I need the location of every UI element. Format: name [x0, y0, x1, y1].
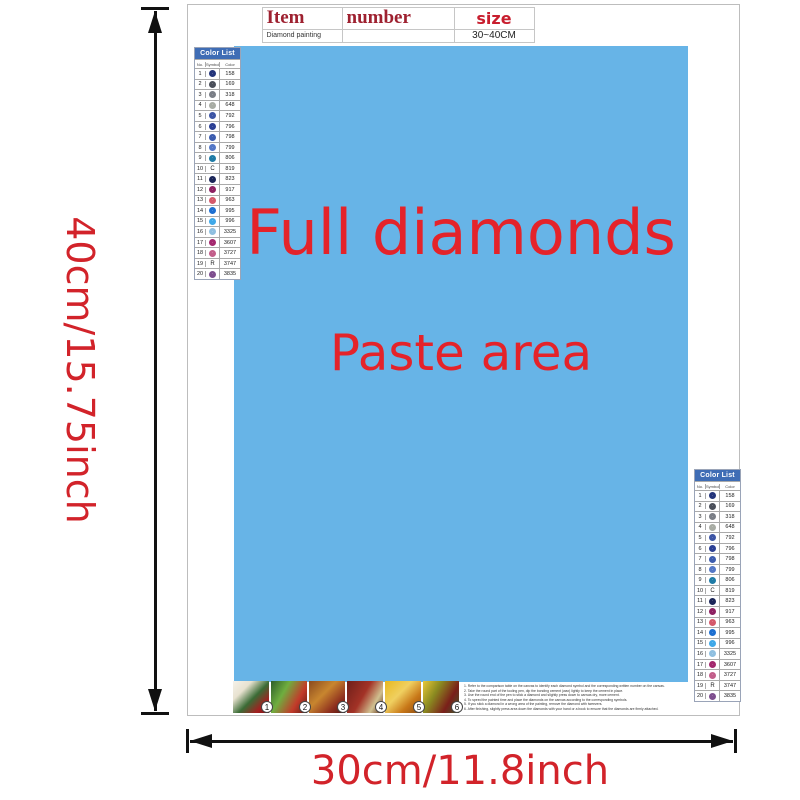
color-symbol-circle-icon: ·	[709, 534, 716, 541]
color-row-code: 796	[720, 546, 740, 552]
color-row: 4·648	[695, 522, 740, 533]
color-row-code: 169	[220, 81, 240, 87]
color-symbol-letter: C	[710, 588, 714, 594]
color-row: 2·169	[195, 79, 240, 90]
color-symbol-circle-icon: ·	[709, 640, 716, 647]
color-row-symbol: ·	[206, 206, 220, 216]
color-row: 13·963	[195, 195, 240, 206]
color-row-symbol: C	[206, 164, 220, 174]
color-row-code: 823	[220, 176, 240, 182]
col-symbol-label: Symbol	[706, 484, 720, 489]
step-photo-tile: 1	[233, 681, 269, 713]
color-row-symbol: ·	[706, 533, 720, 543]
step-photo-tile: 5	[385, 681, 421, 713]
color-symbol-circle-icon: ·	[209, 123, 216, 130]
color-row-number: 8	[195, 145, 206, 151]
color-row-symbol: ·	[706, 565, 720, 575]
color-row-symbol: ·	[206, 196, 220, 206]
color-row-number: 6	[695, 546, 706, 552]
color-row-number: 11	[195, 176, 206, 182]
color-symbol-circle-icon: ·	[209, 207, 216, 214]
color-row-number: 7	[695, 556, 706, 562]
color-list-column-headers: No. Symbol Color	[195, 59, 240, 68]
color-symbol-circle-icon: ·	[709, 650, 716, 657]
color-row: 16·3325	[195, 226, 240, 237]
instruction-text-block: 1. Refer to the comparison table on the …	[464, 684, 722, 712]
arrow-right-head-icon	[711, 734, 733, 748]
color-row-number: 2	[695, 503, 706, 509]
step-number-badge: 4	[375, 701, 387, 713]
color-symbol-circle-icon: ·	[209, 186, 216, 193]
color-row-code: 823	[720, 598, 740, 604]
color-row-number: 13	[195, 197, 206, 203]
color-row-symbol: ·	[706, 670, 720, 680]
color-row-symbol: ·	[706, 639, 720, 649]
color-symbol-circle-icon: ·	[709, 513, 716, 520]
color-row-code: 3325	[220, 229, 240, 235]
color-row-code: 648	[720, 524, 740, 530]
color-row-symbol: R	[206, 259, 220, 269]
color-symbol-circle-icon: ·	[209, 70, 216, 77]
color-row: 14·995	[695, 627, 740, 638]
color-row-symbol: ·	[706, 523, 720, 533]
color-row-code: 3607	[220, 240, 240, 246]
color-row-code: 806	[720, 577, 740, 583]
color-row-symbol: ·	[706, 618, 720, 628]
instruction-steps-strip: 123456	[233, 681, 461, 715]
color-row: 9·806	[695, 574, 740, 585]
number-header-cell: number	[342, 7, 455, 30]
color-row: 7·798	[695, 553, 740, 564]
color-row: 10C819	[195, 163, 240, 174]
color-row: 15·996	[695, 638, 740, 649]
color-list-column-headers: No. Symbol Color	[695, 481, 740, 490]
color-symbol-circle-icon: ·	[209, 271, 216, 278]
color-row-symbol: ·	[206, 69, 220, 79]
color-row-symbol: ·	[206, 153, 220, 163]
col-color-label: Color	[720, 484, 740, 489]
color-row: 15·996	[195, 216, 240, 227]
col-symbol-label: Symbol	[206, 62, 220, 67]
color-symbol-circle-icon: ·	[709, 629, 716, 636]
color-symbol-circle-icon: ·	[709, 556, 716, 563]
color-row: 17·3607	[695, 659, 740, 670]
color-symbol-letter: C	[210, 166, 214, 172]
color-row-number: 20	[195, 271, 206, 277]
color-row-number: 16	[195, 229, 206, 235]
color-symbol-circle-icon: ·	[709, 598, 716, 605]
color-row-code: 3727	[720, 672, 740, 678]
color-row-number: 18	[695, 672, 706, 678]
color-symbol-circle-icon: ·	[709, 545, 716, 552]
color-row: 2·169	[695, 501, 740, 512]
color-row-code: 796	[220, 124, 240, 130]
step-number-badge: 2	[299, 701, 311, 713]
color-row-symbol: ·	[206, 269, 220, 279]
color-list-right: Color List No. Symbol Color 1·1582·1693·…	[694, 469, 741, 702]
color-row-symbol: ·	[206, 80, 220, 90]
color-row: 20·3835	[195, 268, 240, 279]
color-row: 13·963	[695, 617, 740, 628]
color-row-number: 1	[695, 493, 706, 499]
color-row: 7·798	[195, 131, 240, 142]
instruction-line: 6. After finishing, slightly press area …	[464, 707, 722, 712]
color-symbol-circle-icon: ·	[209, 176, 216, 183]
color-symbol-circle-icon: ·	[709, 503, 716, 510]
color-row-code: 799	[720, 567, 740, 573]
color-row-number: 5	[695, 535, 706, 541]
color-symbol-circle-icon: ·	[709, 566, 716, 573]
step-number-badge: 5	[413, 701, 425, 713]
color-symbol-circle-icon: ·	[709, 661, 716, 668]
color-row-symbol: ·	[706, 628, 720, 638]
step-number-badge: 3	[337, 701, 349, 713]
color-row: 6·796	[695, 543, 740, 554]
color-row-number: 10	[195, 166, 206, 172]
color-row-number: 3	[695, 514, 706, 520]
color-row: 1·158	[695, 490, 740, 501]
canvas-sheet: Item number size Diamond painting 30~40C…	[187, 4, 740, 716]
color-row: 17·3607	[195, 237, 240, 248]
color-row-code: 996	[720, 640, 740, 646]
color-row: 12·917	[695, 606, 740, 617]
paste-area: Full diamonds Paste area	[234, 46, 688, 682]
color-row-symbol: ·	[706, 660, 720, 670]
arrow-vertical-line	[154, 11, 157, 711]
color-row-code: 798	[220, 134, 240, 140]
color-row: 3·318	[195, 89, 240, 100]
step-photo-tile: 6	[423, 681, 459, 713]
paste-area-title: Full diamonds	[246, 196, 676, 269]
color-row-code: 648	[220, 102, 240, 108]
item-header-cell: Item	[262, 7, 343, 30]
color-row-code: 3325	[720, 651, 740, 657]
color-row-symbol: ·	[706, 512, 720, 522]
color-row-number: 7	[195, 134, 206, 140]
color-row-symbol: ·	[206, 143, 220, 153]
size-value-cell: 30~40CM	[454, 29, 535, 43]
color-row: 8·799	[695, 564, 740, 575]
color-row-symbol: ·	[706, 554, 720, 564]
color-row-number: 6	[195, 124, 206, 130]
color-row-code: 917	[220, 187, 240, 193]
step-photo-tile: 3	[309, 681, 345, 713]
product-name-cell: Diamond painting	[262, 29, 343, 43]
color-row-code: 819	[720, 588, 740, 594]
color-row: 14·995	[195, 205, 240, 216]
color-row-code: 792	[220, 113, 240, 119]
color-row-code: 799	[220, 145, 240, 151]
color-symbol-circle-icon: ·	[209, 91, 216, 98]
color-list-left: Color List No. Symbol Color 1·1582·1693·…	[194, 47, 241, 280]
color-row-code: 158	[220, 71, 240, 77]
color-row-number: 18	[195, 250, 206, 256]
color-symbol-circle-icon: ·	[709, 577, 716, 584]
col-no-label: No.	[195, 62, 206, 67]
color-row-code: 963	[220, 197, 240, 203]
color-symbol-circle-icon: ·	[209, 250, 216, 257]
height-dimension-arrow	[141, 7, 169, 715]
color-row: 18·3727	[195, 247, 240, 258]
color-row-code: 3747	[720, 683, 740, 689]
color-row-symbol: ·	[206, 174, 220, 184]
color-row-code: 318	[220, 92, 240, 98]
color-row-number: 15	[195, 218, 206, 224]
col-no-label: No.	[695, 484, 706, 489]
color-row-symbol: ·	[706, 502, 720, 512]
color-row: 4·648	[195, 100, 240, 111]
color-symbol-circle-icon: ·	[709, 619, 716, 626]
color-row: 12·917	[195, 184, 240, 195]
color-row-number: 12	[195, 187, 206, 193]
color-row: 6·796	[195, 121, 240, 132]
color-row-code: 3835	[720, 693, 740, 699]
color-symbol-circle-icon: ·	[209, 102, 216, 109]
color-row-number: 15	[695, 640, 706, 646]
arrow-down-head-icon	[148, 689, 162, 711]
color-symbol-circle-icon: ·	[209, 197, 216, 204]
step-number-badge: 1	[261, 701, 273, 713]
color-row: 5·792	[695, 532, 740, 543]
color-row: 11·823	[695, 595, 740, 606]
color-symbol-circle-icon: ·	[209, 144, 216, 151]
color-row-number: 5	[195, 113, 206, 119]
color-list-title: Color List	[195, 48, 240, 59]
color-row-symbol: ·	[706, 649, 720, 659]
color-row: 16·3325	[695, 648, 740, 659]
item-size-table: Item number size Diamond painting 30~40C…	[262, 7, 504, 42]
color-list-rows: 1·1582·1693·3184·6485·7926·7967·7988·799…	[195, 68, 240, 279]
color-row: 11·823	[195, 173, 240, 184]
color-row-code: 963	[720, 619, 740, 625]
color-symbol-letter: R	[210, 261, 214, 267]
color-row-code: 3747	[220, 261, 240, 267]
color-row-code: 158	[720, 493, 740, 499]
color-row: 18·3727	[695, 669, 740, 680]
color-row-code: 806	[220, 155, 240, 161]
color-row-symbol: ·	[206, 217, 220, 227]
color-row-symbol: ·	[206, 111, 220, 121]
color-symbol-circle-icon: ·	[709, 524, 716, 531]
color-row: 8·799	[195, 142, 240, 153]
step-number-badge: 6	[451, 701, 463, 713]
color-symbol-circle-icon: ·	[209, 155, 216, 162]
paste-area-subtitle: Paste area	[330, 324, 592, 382]
color-row-number: 12	[695, 609, 706, 615]
arrow-horizontal-line	[190, 740, 733, 743]
color-row-code: 995	[220, 208, 240, 214]
color-row-symbol: ·	[706, 596, 720, 606]
color-row-number: 4	[695, 524, 706, 530]
color-row-symbol: ·	[706, 575, 720, 585]
color-row-symbol: ·	[206, 132, 220, 142]
arrow-bottom-cap	[141, 712, 169, 715]
color-row-number: 11	[695, 598, 706, 604]
color-row-number: 17	[195, 240, 206, 246]
color-row-symbol: ·	[706, 491, 720, 501]
arrow-top-cap	[141, 7, 169, 10]
color-row-code: 798	[720, 556, 740, 562]
color-row-number: 1	[195, 71, 206, 77]
color-row-symbol: ·	[206, 185, 220, 195]
color-symbol-circle-icon: ·	[209, 218, 216, 225]
color-row-symbol: ·	[206, 227, 220, 237]
color-row-symbol: ·	[706, 607, 720, 617]
color-row: 19R3747	[195, 258, 240, 269]
color-row-number: 3	[195, 92, 206, 98]
color-list-title: Color List	[695, 470, 740, 481]
arrow-left-cap	[186, 729, 189, 753]
color-row-code: 792	[720, 535, 740, 541]
color-row-code: 318	[720, 514, 740, 520]
color-row-code: 3607	[720, 662, 740, 668]
color-symbol-circle-icon: ·	[209, 134, 216, 141]
color-row-number: 19	[195, 261, 206, 267]
step-photo-tile: 2	[271, 681, 307, 713]
color-row-code: 995	[720, 630, 740, 636]
color-row: 10C819	[695, 585, 740, 596]
color-row-symbol: ·	[206, 238, 220, 248]
color-row-code: 819	[220, 166, 240, 172]
color-row-symbol: ·	[206, 122, 220, 132]
color-row-symbol: ·	[206, 90, 220, 100]
size-header-cell: size	[454, 7, 535, 30]
color-row: 3·318	[695, 511, 740, 522]
color-row-code: 3835	[220, 271, 240, 277]
arrow-right-cap	[734, 729, 737, 753]
color-row-number: 14	[695, 630, 706, 636]
color-symbol-circle-icon: ·	[209, 239, 216, 246]
color-row-symbol: ·	[706, 544, 720, 554]
color-row-number: 17	[695, 662, 706, 668]
color-row: 1·158	[195, 68, 240, 79]
color-row-symbol: ·	[206, 248, 220, 258]
color-row-code: 3727	[220, 250, 240, 256]
color-symbol-circle-icon: ·	[709, 492, 716, 499]
color-row: 9·806	[195, 152, 240, 163]
number-value-cell	[342, 29, 455, 43]
color-symbol-circle-icon: ·	[709, 608, 716, 615]
color-row-number: 13	[695, 619, 706, 625]
color-symbol-circle-icon: ·	[709, 672, 716, 679]
color-row-number: 8	[695, 567, 706, 573]
color-row-symbol: C	[706, 586, 720, 596]
color-row-code: 169	[720, 503, 740, 509]
color-row-number: 9	[195, 155, 206, 161]
color-symbol-circle-icon: ·	[209, 112, 216, 119]
height-dimension-label: 40cm/15.75inch	[58, 202, 102, 538]
color-row-number: 2	[195, 81, 206, 87]
color-row-number: 10	[695, 588, 706, 594]
color-row: 5·792	[195, 110, 240, 121]
col-color-label: Color	[220, 62, 240, 67]
color-list-rows: 1·1582·1693·3184·6485·7926·7967·7988·799…	[695, 490, 740, 701]
width-dimension-label: 30cm/11.8inch	[260, 748, 660, 794]
color-row-number: 14	[195, 208, 206, 214]
color-row-number: 9	[695, 577, 706, 583]
color-row-number: 4	[195, 102, 206, 108]
color-symbol-circle-icon: ·	[209, 228, 216, 235]
step-photo-tile: 4	[347, 681, 383, 713]
color-row-code: 996	[220, 218, 240, 224]
color-row-symbol: ·	[206, 101, 220, 111]
color-row-number: 16	[695, 651, 706, 657]
color-symbol-circle-icon: ·	[209, 81, 216, 88]
color-row-code: 917	[720, 609, 740, 615]
